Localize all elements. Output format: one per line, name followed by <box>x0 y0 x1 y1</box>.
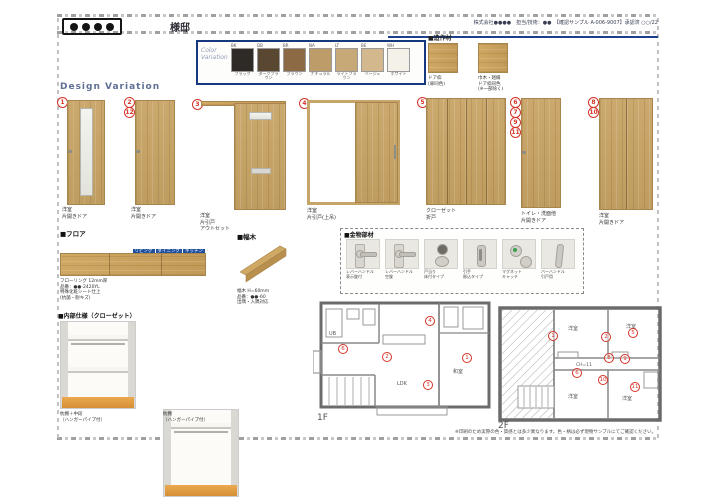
door-6-image <box>521 98 561 208</box>
svg-text:洋室: 洋室 <box>568 325 578 332</box>
plan-marker: 5 <box>628 328 638 338</box>
door-stop-icon <box>424 239 458 269</box>
hardware-item: 戸当り床付タイプ <box>424 239 458 280</box>
hardware-item: レバーハンドル空錠 <box>385 239 419 280</box>
color-swatch: DBダークブラウン <box>257 44 280 81</box>
swatch-chip <box>283 48 306 72</box>
door-2-label: 洋室片開きドア <box>131 207 156 220</box>
door-5-seam <box>486 99 487 204</box>
magnet-catch-icon <box>502 239 536 269</box>
door-4-pull <box>394 145 396 159</box>
closet-label-2: 枕棚（ハンガーパイプ付） <box>163 412 208 423</box>
bottom-border-band <box>57 437 659 440</box>
door-3-plate <box>251 168 271 174</box>
closet-section-title: ■内部仕様（クローゼット） <box>58 311 136 320</box>
hardware-item: バーハンドル引戸用 <box>541 239 575 280</box>
floor-plan-2f: 洋室 洋室 洋室 洋室 CH=11 2F <box>496 300 668 430</box>
header-divider-band <box>57 31 659 34</box>
plan-marker: 6 <box>572 368 582 378</box>
svg-text:洋室: 洋室 <box>568 393 578 400</box>
lever-handle-icon <box>346 239 380 269</box>
left-border-band <box>57 14 59 438</box>
door-5-seam <box>466 99 467 204</box>
door-number-badge: 10 <box>588 107 599 118</box>
closet-hanger-pipe <box>71 343 125 345</box>
svg-text:UB: UB <box>329 331 337 337</box>
plan-marker: 3 <box>423 380 433 390</box>
client-name-suffix: 様邸 <box>170 19 190 34</box>
lever-handle-icon <box>385 239 419 269</box>
swatch-chip <box>257 48 280 72</box>
plan-marker: 11 <box>630 382 640 392</box>
plan-marker: 9 <box>620 354 630 364</box>
plan-marker: 4 <box>425 316 435 326</box>
swatch-chip <box>335 48 358 72</box>
logo-dot <box>94 23 102 31</box>
closet-floor <box>62 397 134 408</box>
door-6-handle <box>522 151 526 154</box>
swatch-chip <box>231 48 254 72</box>
door-4-label: 洋室片引戸(上吊) <box>307 208 336 221</box>
zosaku-swatch-doorframe <box>428 43 458 73</box>
color-swatch: BKブラック <box>231 44 254 81</box>
floor-plank-image <box>60 253 206 276</box>
hardware-item: レバーハンドル表示錠付 <box>346 239 380 280</box>
closet-top-shelf <box>68 335 128 341</box>
plan-marker: 8 <box>604 353 614 363</box>
hardware-items-row: レバーハンドル表示錠付 レバーハンドル空錠 戸当り床付タイプ 引手彫込タイプ マ… <box>346 239 580 280</box>
swatch-chip <box>361 48 384 72</box>
client-logo-box <box>62 18 122 35</box>
footer-disclaimer: ※印刷のため実際の色・質感とは多少異なります。色・柄は必ず現物サンプルにてご確認… <box>455 429 660 435</box>
color-swatch: LTライトブラウン <box>335 44 358 81</box>
door-5-image <box>426 98 506 205</box>
floor-notes: フローリング 12mm厚品番：●●-2420YL特殊化粧シート仕上(抗菌・耐キズ… <box>60 279 107 302</box>
closet-middle-shelf <box>68 367 128 373</box>
bar-handle-icon <box>541 239 575 269</box>
color-swatch: WHホワイト <box>387 44 410 81</box>
zosaku-title: ■造作材 <box>428 33 452 42</box>
door-2-handle <box>136 150 140 153</box>
door-2-image <box>135 100 175 205</box>
door-5-label: クローゼット折戸 <box>426 208 456 221</box>
company-info-text: 株式会社●●●● 担当/技術：●● 【確認サンプル A-006-9007】承認済… <box>428 19 658 26</box>
door-7-label: 洋室片開きドア <box>599 213 624 226</box>
door-1-label: 洋室片開きドア <box>62 207 87 220</box>
svg-text:洋室: 洋室 <box>622 395 632 402</box>
door-1-glass-panel <box>80 108 93 196</box>
swatch-chip <box>387 48 410 72</box>
zosaku-label-1: ドア枠(扉同色) <box>428 76 445 87</box>
plan-marker: 10 <box>598 375 608 385</box>
plan-marker: 1 <box>548 331 558 341</box>
logo-dot <box>106 23 114 31</box>
color-swatch: BRブラウン <box>283 44 306 81</box>
door-5-seam <box>447 99 448 204</box>
plan-marker: 2 <box>382 352 392 362</box>
hardware-item: 引手彫込タイプ <box>463 239 497 280</box>
door-3-glass-slit <box>249 112 272 120</box>
plan-marker: 6 <box>338 344 348 354</box>
plank-seam <box>161 254 162 275</box>
svg-text:LDK: LDK <box>397 381 408 387</box>
closet-floor <box>165 485 237 496</box>
hardware-panel: ■金物部材 レバーハンドル表示錠付 レバーハンドル空錠 戸当り床付タイプ 引手彫… <box>340 228 584 294</box>
color-swatch: NAナチュラル <box>309 44 332 81</box>
color-variation-panel: Color Variation BKブラック DBダークブラウン BRブラウン … <box>196 40 426 85</box>
zosaku-swatch-baseboard <box>478 43 508 73</box>
logo-dot <box>70 23 78 31</box>
door-number-badge: 11 <box>510 127 521 138</box>
color-variation-title: Color Variation <box>201 44 231 81</box>
habaki-notes: 幅木 H=60mm品番：●●-60出隅・入隅対応 <box>237 289 269 306</box>
door-1-handle <box>68 150 72 153</box>
svg-text:和室: 和室 <box>453 368 463 375</box>
hardware-item: マグネットキャッチ <box>502 239 536 280</box>
color-swatch: BEベージュ <box>361 44 384 81</box>
swatch-chip <box>309 48 332 72</box>
door-number-badge: 12 <box>124 107 135 118</box>
ceiling-height-label: CH=11 <box>576 362 592 368</box>
closet-top-shelf <box>171 423 231 429</box>
door-4-image <box>355 102 398 203</box>
habaki-profile-image <box>238 240 290 288</box>
plan-1f-label: 1F <box>317 413 328 423</box>
closet-hanger-pipe <box>174 431 228 433</box>
design-variation-title: Design Variation <box>60 82 160 92</box>
door-3-label: 洋室片引戸アウトセット <box>200 213 230 233</box>
plank-seam <box>109 254 110 275</box>
zosaku-label-2: 巾木・廻縁ドア枠同色(※一部除く) <box>478 76 503 93</box>
hardware-section-title: ■金物部材 <box>344 230 374 239</box>
plan-marker: 1 <box>462 353 472 363</box>
logo-dot <box>82 23 90 31</box>
flush-pull-icon <box>463 239 497 269</box>
plan-marker: 2 <box>601 332 611 342</box>
door-7-image <box>599 98 653 210</box>
door-7-seam <box>626 99 627 209</box>
top-border-band <box>57 14 659 17</box>
closet-image-1 <box>60 321 136 409</box>
closet-label-1: 枕棚＋中段（ハンガーパイプ付） <box>60 412 105 423</box>
door-6-label: トイレ・洗面他片開きドア <box>521 211 556 224</box>
